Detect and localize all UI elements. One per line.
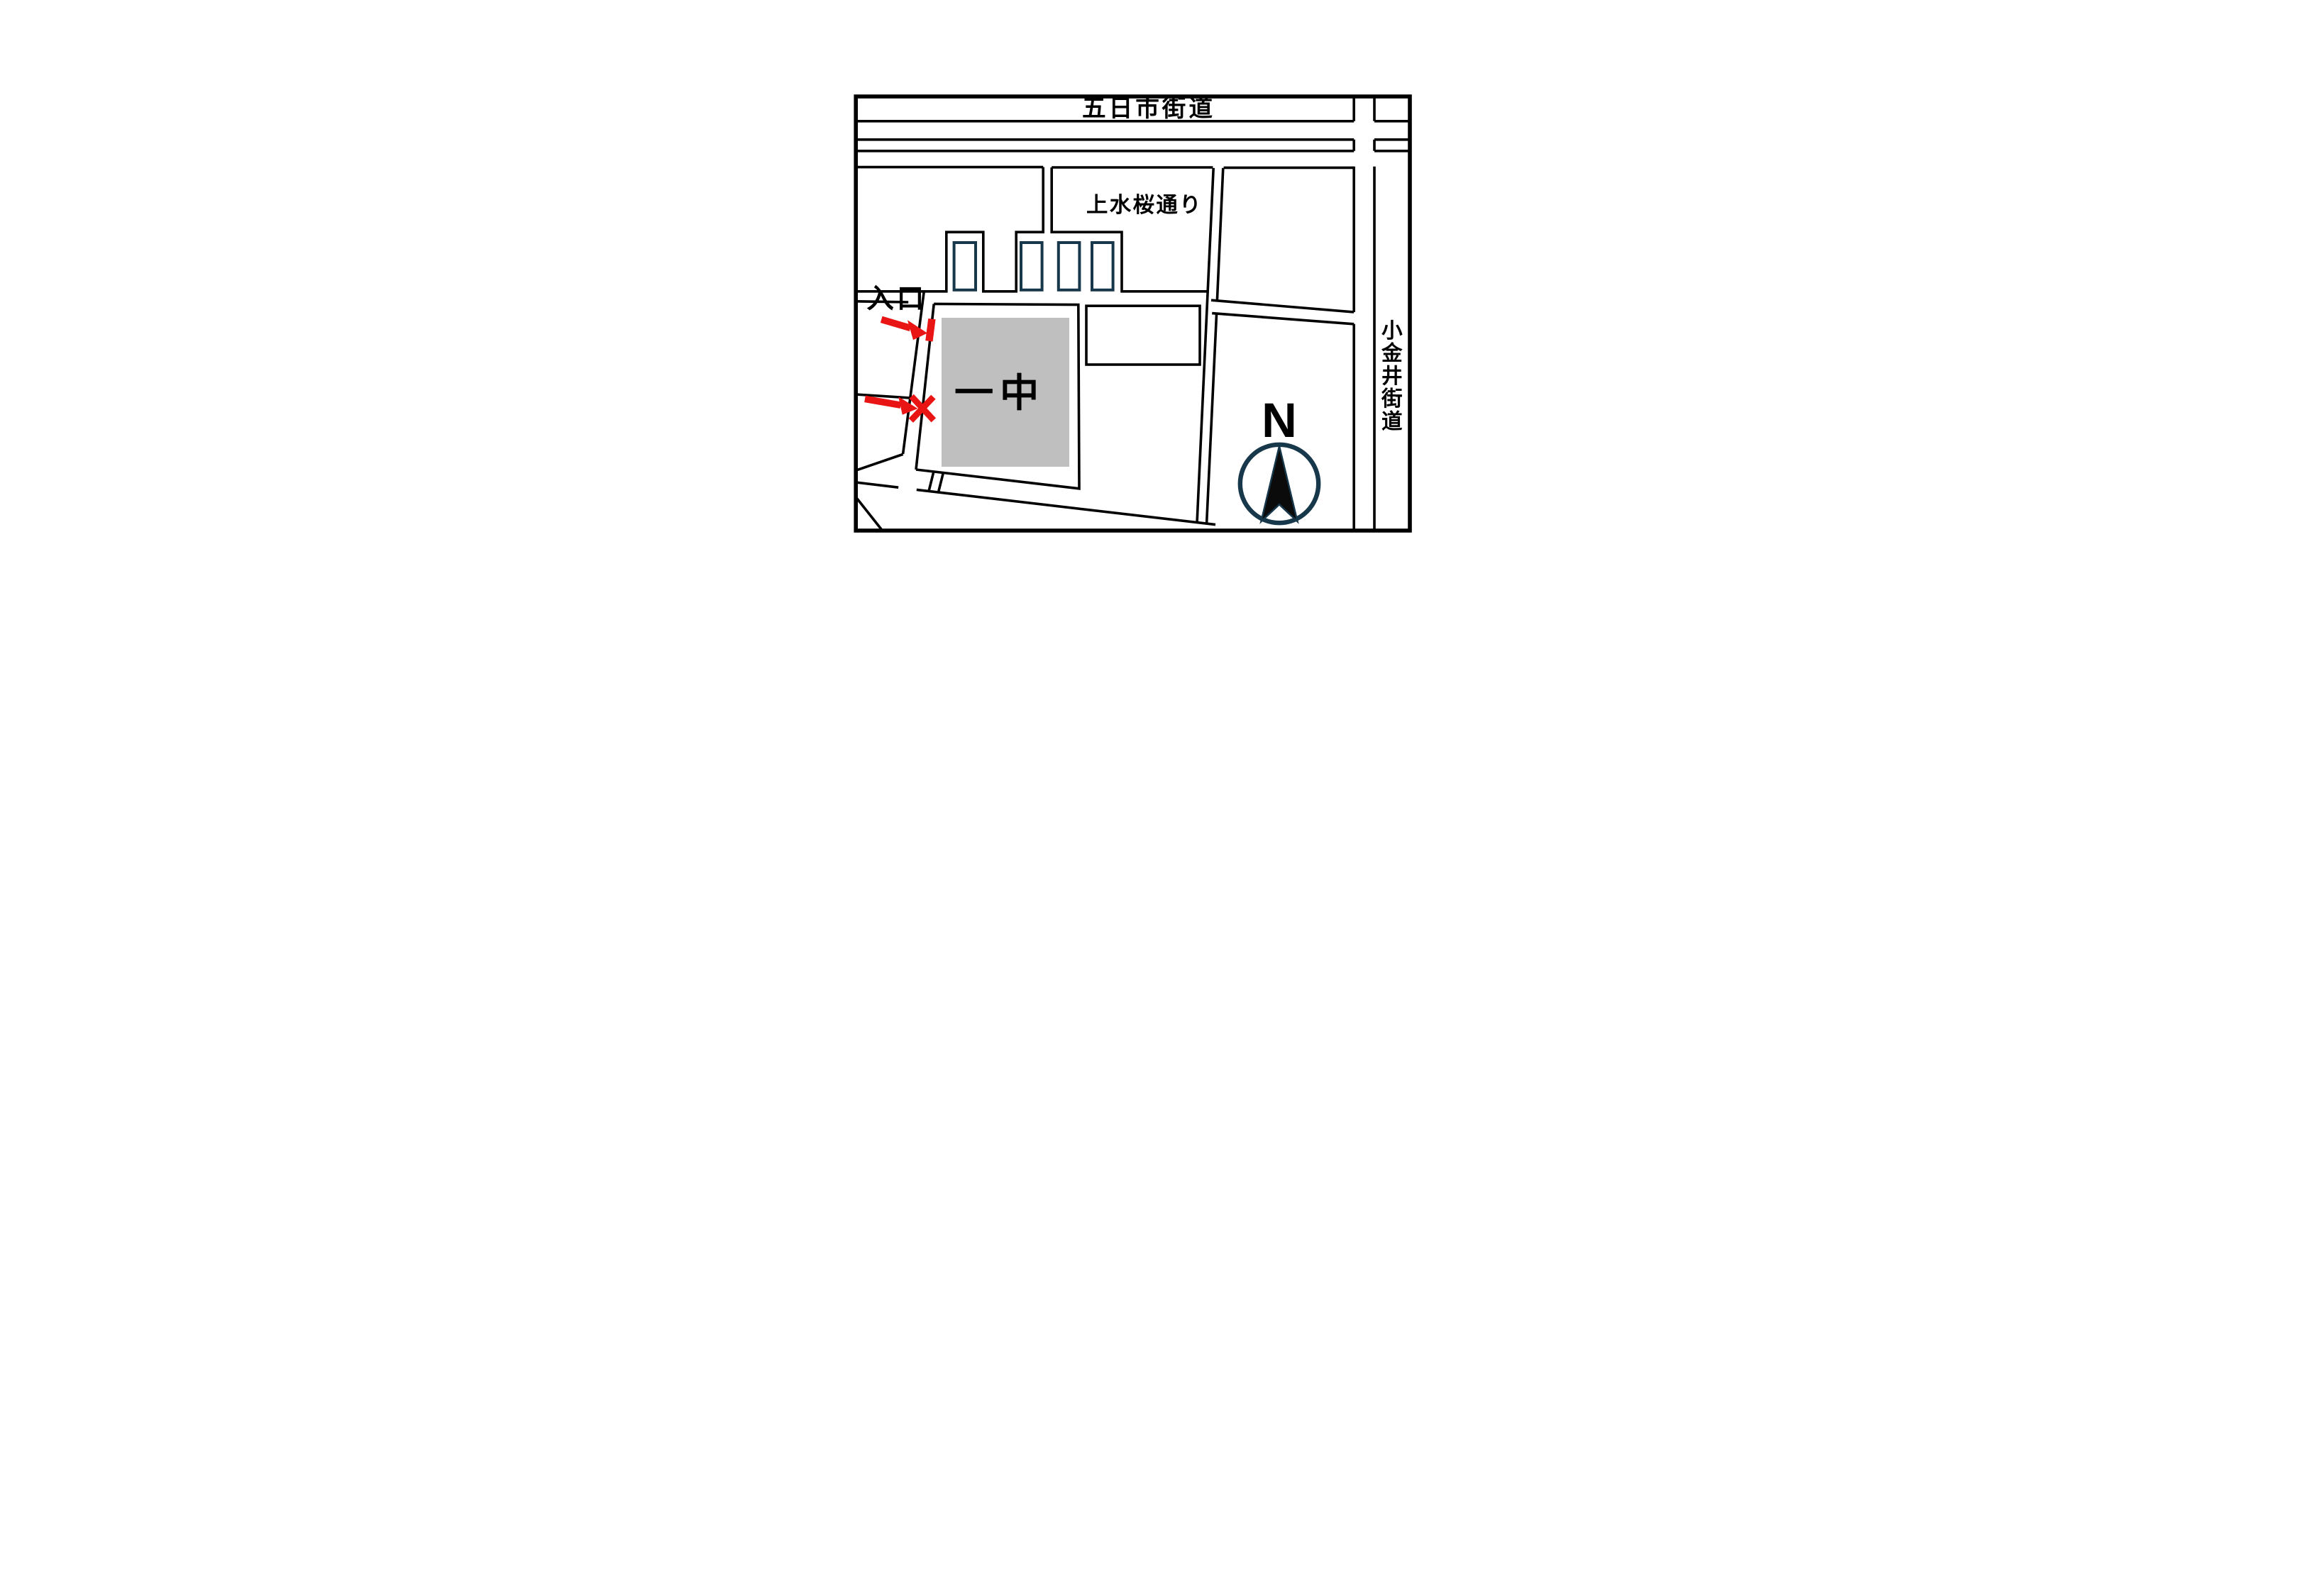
sakura-street-label: 上水桜通り bbox=[1086, 193, 1203, 217]
right-road-label: 小金井街道 bbox=[1381, 319, 1403, 433]
access-map: 一中 五日市街道 上水桜通り 小金井街道 入口 N bbox=[692, 0, 1614, 638]
map-page: 一中 五日市街道 上水桜通り 小金井街道 入口 N bbox=[692, 0, 1614, 638]
block-top-edges bbox=[856, 167, 1354, 168]
building-rect-icon bbox=[1059, 243, 1080, 290]
school-label: 一中 bbox=[954, 371, 1045, 415]
entrance-label: 入口 bbox=[866, 284, 927, 314]
building-rect-icon bbox=[954, 243, 976, 290]
entrance-tick-marker bbox=[929, 319, 932, 341]
building-rect-icon bbox=[1021, 243, 1042, 290]
building-rect-icon bbox=[1092, 243, 1113, 290]
compass-n-label: N bbox=[1262, 393, 1297, 448]
top-road-label: 五日市街道 bbox=[1082, 94, 1215, 122]
